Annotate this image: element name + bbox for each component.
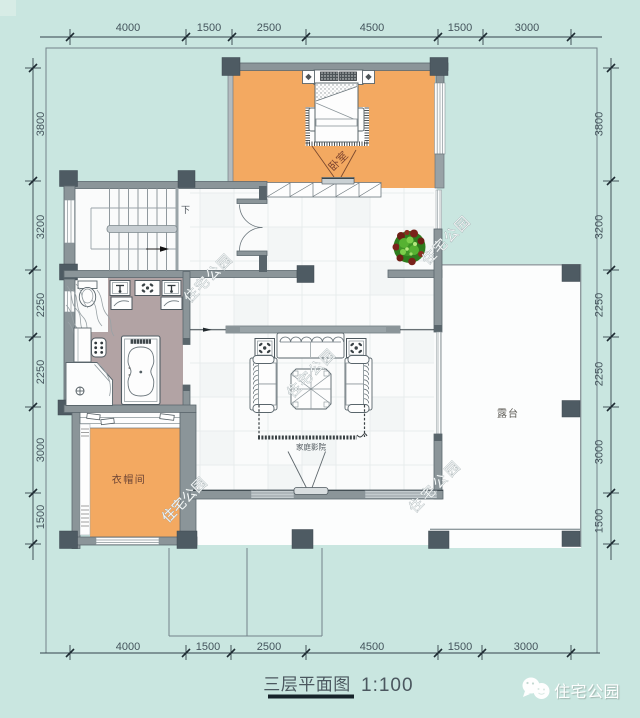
svg-text:2250: 2250 (594, 362, 606, 386)
svg-text:3000: 3000 (515, 22, 539, 34)
svg-text:3000: 3000 (594, 440, 606, 464)
svg-text:下: 下 (181, 205, 190, 215)
svg-text:4500: 4500 (360, 22, 384, 34)
svg-text:1500: 1500 (594, 509, 606, 533)
svg-text:衣帽间: 衣帽间 (112, 473, 147, 486)
svg-text:4000: 4000 (116, 22, 140, 34)
svg-text:1500: 1500 (448, 22, 472, 34)
svg-text:三层平面图: 三层平面图 (263, 675, 351, 694)
svg-text:露台: 露台 (497, 407, 519, 420)
svg-text:1:100: 1:100 (361, 675, 414, 696)
svg-text:1500: 1500 (448, 641, 472, 653)
svg-text:3000: 3000 (514, 641, 538, 653)
svg-text:2500: 2500 (257, 641, 281, 653)
svg-text:3200: 3200 (594, 215, 606, 239)
svg-text:1500: 1500 (35, 505, 47, 529)
svg-text:4500: 4500 (360, 641, 384, 653)
svg-text:2500: 2500 (257, 22, 281, 34)
svg-text:1500: 1500 (197, 22, 221, 34)
svg-text:3000: 3000 (35, 438, 47, 462)
svg-text:住宅公园: 住宅公园 (554, 683, 620, 701)
svg-text:2250: 2250 (35, 293, 47, 317)
svg-text:3200: 3200 (35, 215, 47, 239)
svg-text:3800: 3800 (594, 112, 606, 136)
svg-text:2250: 2250 (594, 293, 606, 317)
svg-text:4000: 4000 (116, 641, 140, 653)
svg-text:1500: 1500 (196, 641, 220, 653)
svg-text:3800: 3800 (35, 112, 47, 136)
svg-text:2250: 2250 (35, 360, 47, 384)
svg-text:家庭影院: 家庭影院 (296, 442, 326, 452)
